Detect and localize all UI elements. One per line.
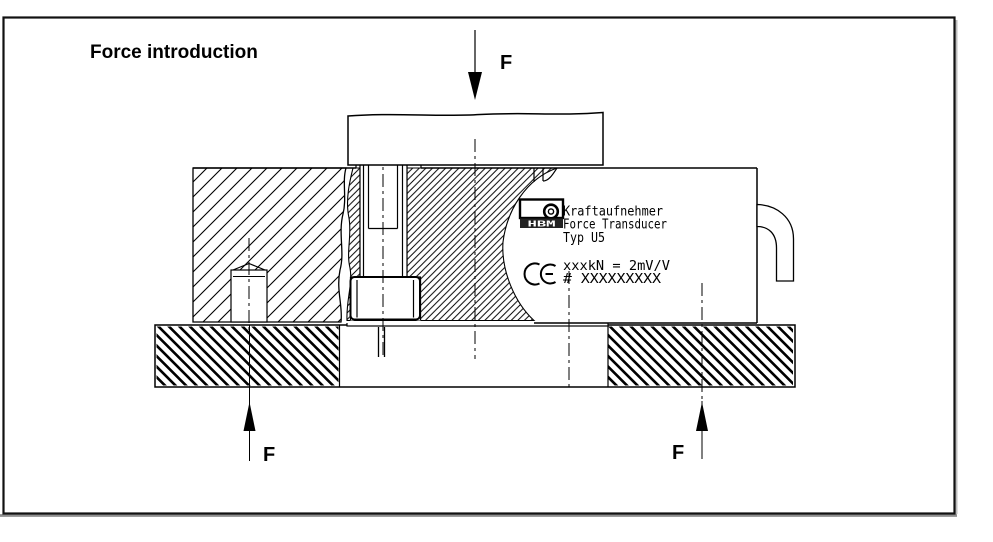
force-arrow-label-top: F	[500, 52, 512, 74]
hbm-logo-circle	[544, 205, 558, 219]
hbm-logo: HBM	[520, 200, 563, 229]
base-hatch-left	[157, 327, 339, 386]
hbm-logo-text: HBM	[528, 219, 556, 228]
bolt-head	[351, 277, 421, 320]
figure-title: Force introduction	[90, 42, 258, 63]
base-hatch-right	[609, 327, 794, 386]
force-arrow-label-bottom-left: F	[263, 444, 275, 466]
force-introduction-diagram: Force introduction F	[0, 0, 993, 542]
fixture-block	[193, 168, 346, 322]
label-serial: # XXXXXXXXX	[563, 272, 661, 287]
force-arrow-label-bottom-right: F	[672, 442, 684, 464]
label-type: Typ U5	[563, 231, 605, 246]
figure-canvas: Force introduction F	[0, 0, 993, 542]
